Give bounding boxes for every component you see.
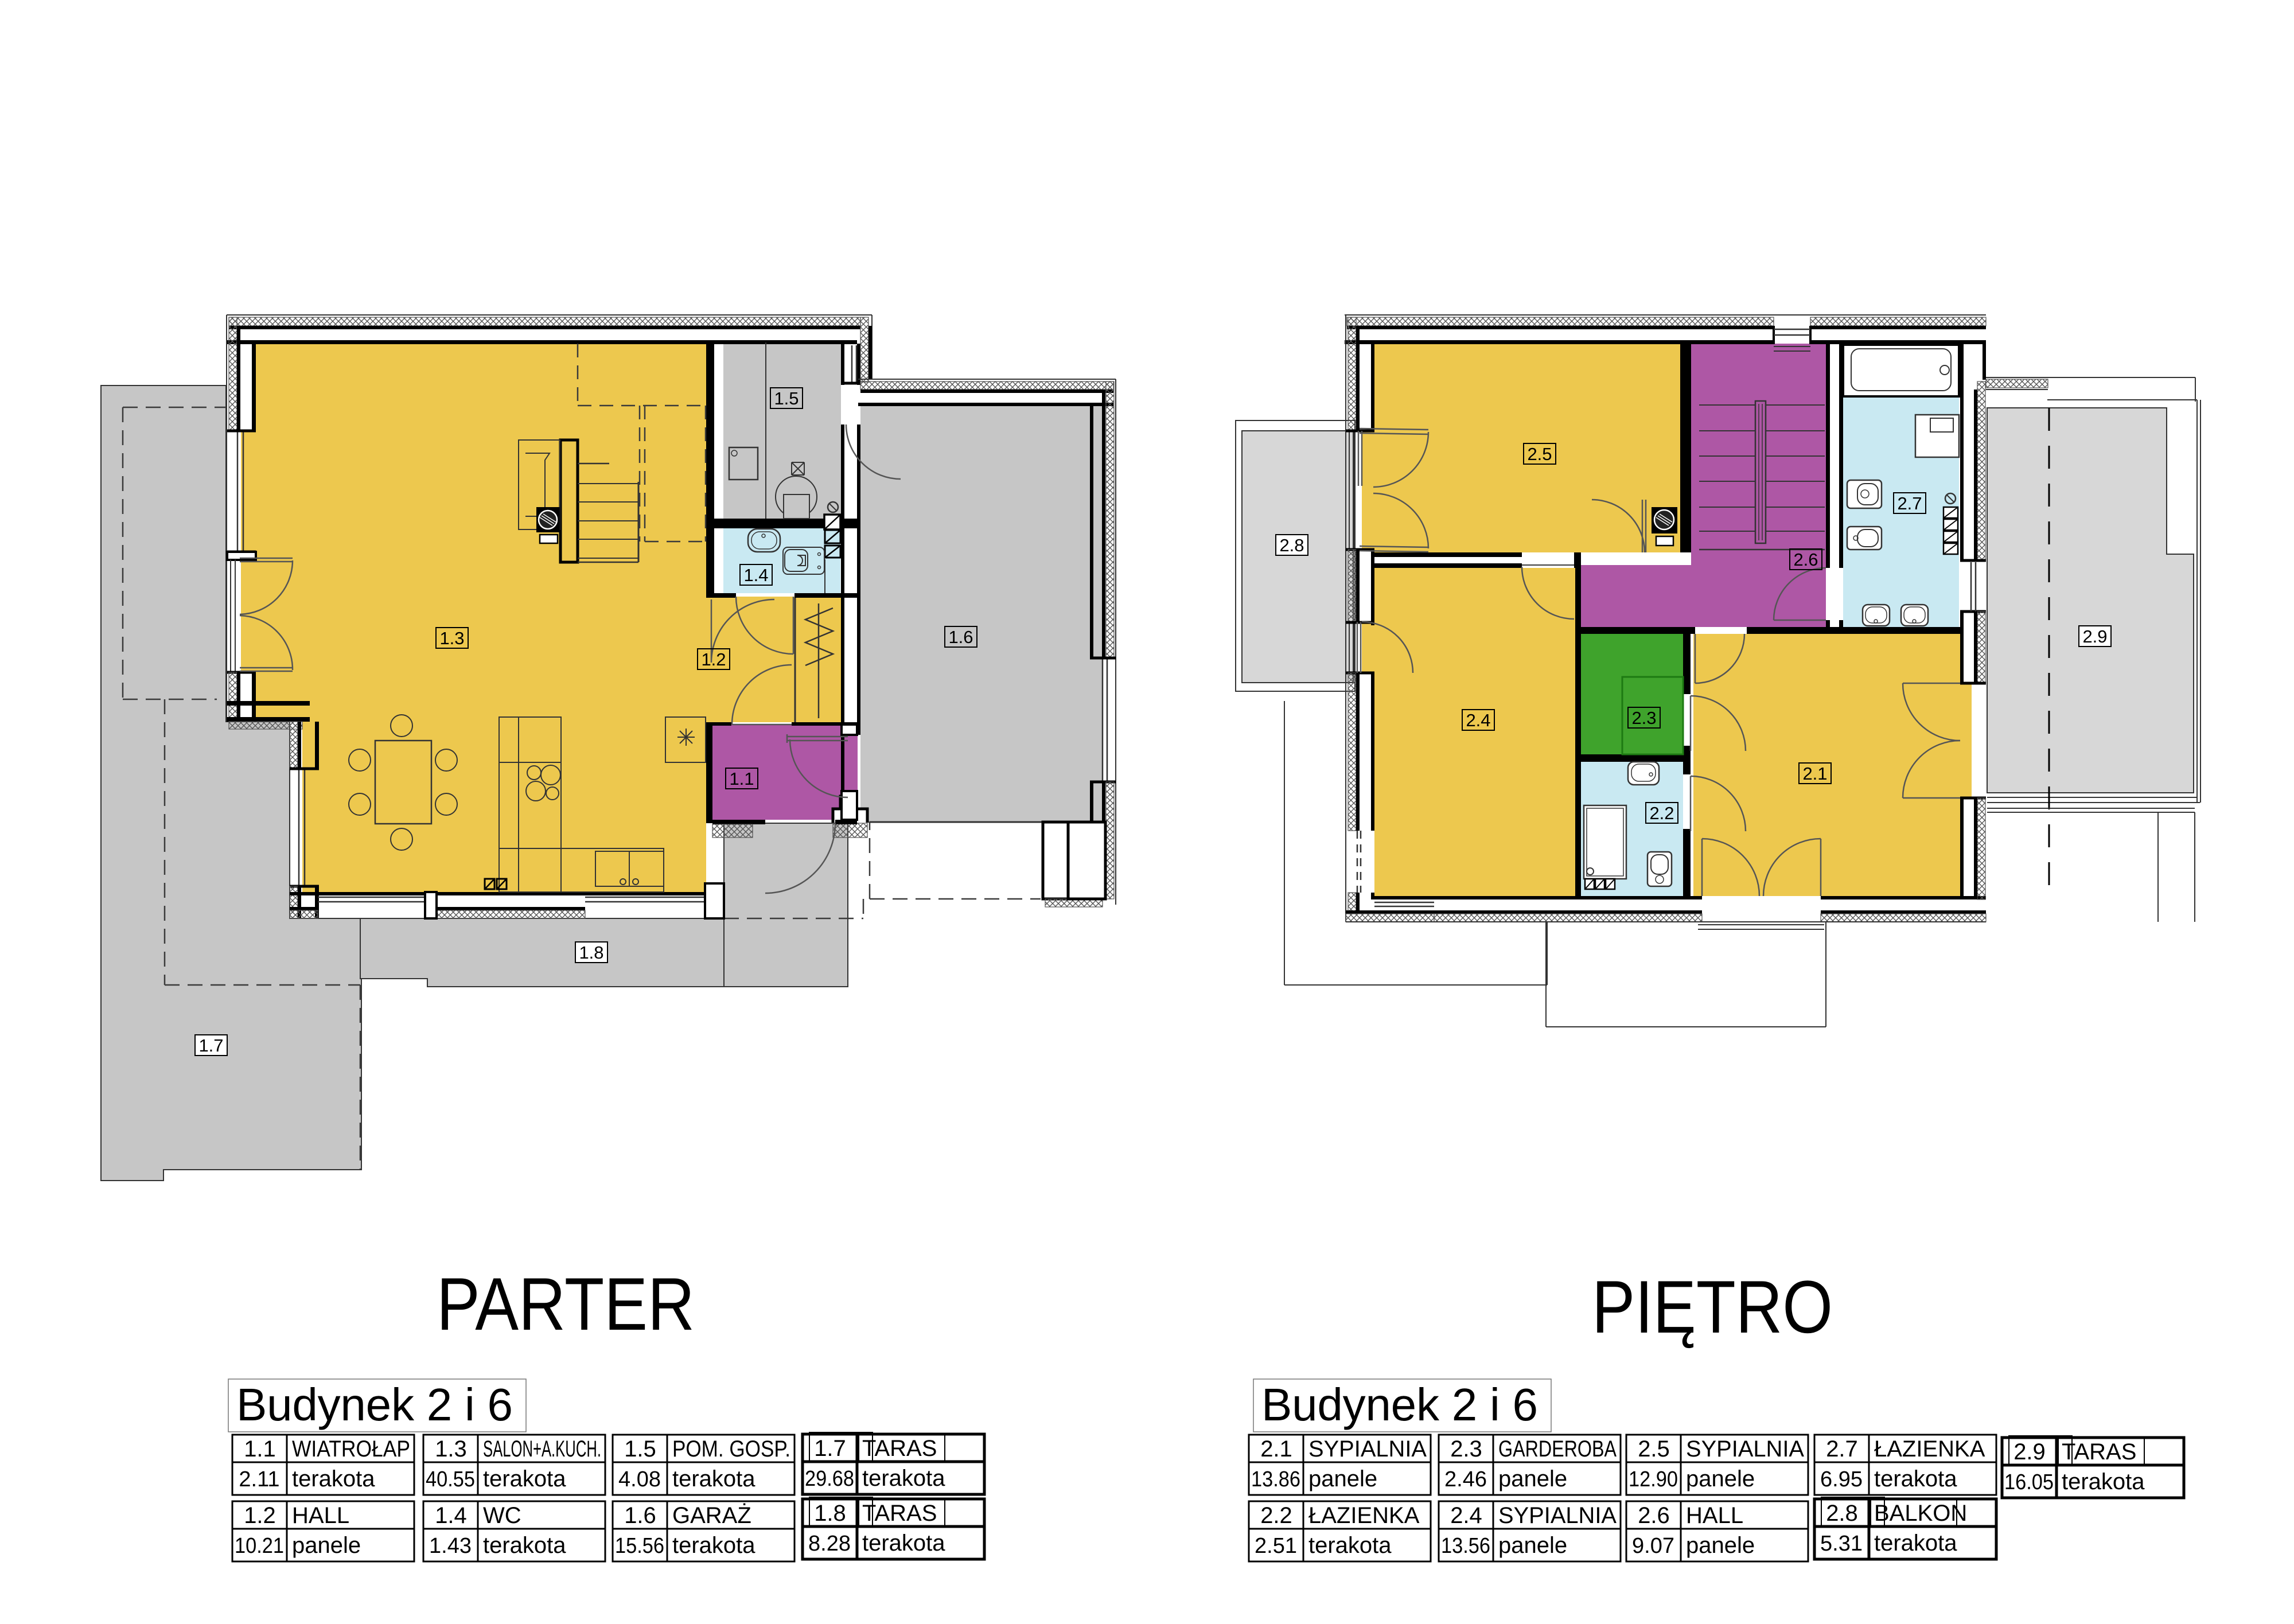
svg-text:15.56: 15.56 [615,1534,664,1558]
svg-text:GARAŻ: GARAŻ [672,1502,751,1528]
svg-text:terakota: terakota [1874,1466,1957,1491]
svg-text:1.7: 1.7 [198,1035,223,1056]
svg-text:panele: panele [1498,1533,1567,1558]
svg-text:terakota: terakota [862,1530,945,1556]
svg-text:terakota: terakota [672,1466,755,1491]
svg-text:5.31: 5.31 [1820,1532,1863,1556]
svg-text:2.1: 2.1 [1802,764,1827,784]
svg-text:1.43: 1.43 [429,1534,472,1558]
svg-text:panele: panele [1686,1533,1755,1558]
svg-text:1.3: 1.3 [435,1436,467,1462]
svg-text:2.9: 2.9 [2082,626,2107,647]
svg-text:terakota: terakota [292,1466,375,1491]
svg-text:terakota: terakota [483,1533,566,1558]
svg-text:ŁAZIENKA: ŁAZIENKA [1308,1503,1420,1528]
svg-text:GARDEROBA: GARDEROBA [1498,1436,1617,1462]
svg-text:panele: panele [1686,1466,1755,1491]
svg-text:PARTER: PARTER [437,1262,695,1346]
svg-text:16.05: 16.05 [2004,1470,2054,1494]
svg-text:1.6: 1.6 [624,1503,656,1528]
svg-text:2.7: 2.7 [1897,493,1922,513]
svg-text:2.3: 2.3 [1631,708,1656,728]
svg-text:2.2: 2.2 [1260,1503,1292,1528]
svg-text:2.6: 2.6 [1638,1503,1670,1528]
svg-text:2.5: 2.5 [1527,444,1552,464]
svg-text:TARAS: TARAS [862,1436,937,1461]
svg-text:1.6: 1.6 [948,627,973,647]
svg-text:terakota: terakota [483,1466,566,1491]
svg-text:1.3: 1.3 [439,628,464,648]
svg-text:ŁAZIENKA: ŁAZIENKA [1874,1436,1985,1462]
svg-text:4.08: 4.08 [618,1467,661,1491]
svg-text:2.46: 2.46 [1444,1467,1487,1491]
svg-text:HALL: HALL [292,1503,349,1528]
svg-text:6.95: 6.95 [1820,1467,1863,1491]
svg-text:panele: panele [1308,1466,1377,1491]
svg-text:TARAS: TARAS [2062,1439,2136,1465]
svg-text:SYPIALNIA: SYPIALNIA [1686,1436,1804,1462]
svg-text:Budynek 2 i 6: Budynek 2 i 6 [236,1379,513,1430]
svg-text:10.21: 10.21 [235,1534,284,1558]
svg-text:1.5: 1.5 [624,1436,656,1462]
svg-text:1.2: 1.2 [244,1503,276,1528]
svg-text:1.7: 1.7 [814,1436,846,1461]
svg-text:PIĘTRO: PIĘTRO [1592,1265,1833,1349]
svg-text:SYPIALNIA: SYPIALNIA [1498,1503,1617,1528]
svg-text:HALL: HALL [1686,1503,1743,1528]
svg-text:12.90: 12.90 [1629,1467,1678,1491]
svg-text:13.86: 13.86 [1251,1467,1300,1491]
svg-text:terakota: terakota [672,1533,755,1558]
svg-text:2.51: 2.51 [1255,1534,1297,1558]
svg-text:1.8: 1.8 [814,1501,846,1526]
svg-text:SYPIALNIA: SYPIALNIA [1308,1436,1427,1462]
svg-text:2.1: 2.1 [1260,1436,1292,1462]
svg-text:terakota: terakota [1874,1530,1957,1556]
svg-text:Budynek 2 i 6: Budynek 2 i 6 [1261,1379,1538,1430]
svg-text:2.8: 2.8 [1826,1501,1858,1526]
svg-text:8.28: 8.28 [808,1532,851,1556]
svg-text:1.4: 1.4 [435,1503,467,1528]
svg-text:1.8: 1.8 [579,943,603,963]
svg-text:1.4: 1.4 [743,565,768,585]
svg-text:2.4: 2.4 [1466,710,1490,730]
svg-text:2.2: 2.2 [1649,803,1674,823]
svg-text:terakota: terakota [862,1466,945,1491]
svg-text:1.1: 1.1 [729,769,754,789]
svg-text:terakota: terakota [1308,1533,1392,1558]
svg-text:POM. GOSP.: POM. GOSP. [672,1436,790,1462]
svg-text:2.9: 2.9 [2013,1439,2046,1465]
svg-text:2.8: 2.8 [1279,535,1304,555]
svg-text:2.11: 2.11 [239,1467,279,1491]
svg-text:SALON+A.KUCH.: SALON+A.KUCH. [483,1436,601,1462]
svg-text:1.5: 1.5 [774,388,799,408]
svg-text:2.3: 2.3 [1450,1436,1482,1462]
svg-text:terakota: terakota [2062,1469,2145,1494]
svg-text:panele: panele [1498,1466,1567,1491]
svg-text:40.55: 40.55 [426,1467,475,1491]
svg-text:BALKON: BALKON [1874,1501,1967,1526]
svg-text:13.56: 13.56 [1441,1534,1490,1558]
svg-text:29.68: 29.68 [805,1467,854,1491]
svg-text:2.7: 2.7 [1826,1436,1858,1462]
svg-text:2.6: 2.6 [1793,550,1818,570]
svg-text:panele: panele [292,1533,361,1558]
svg-text:1.2: 1.2 [701,649,726,669]
svg-text:2.4: 2.4 [1450,1503,1482,1528]
svg-text:9.07: 9.07 [1632,1534,1674,1558]
svg-text:WIATROŁAP: WIATROŁAP [292,1436,410,1462]
svg-text:WC: WC [483,1503,521,1528]
svg-text:TARAS: TARAS [862,1501,937,1526]
svg-text:1.1: 1.1 [244,1436,276,1462]
svg-text:2.5: 2.5 [1638,1436,1670,1462]
